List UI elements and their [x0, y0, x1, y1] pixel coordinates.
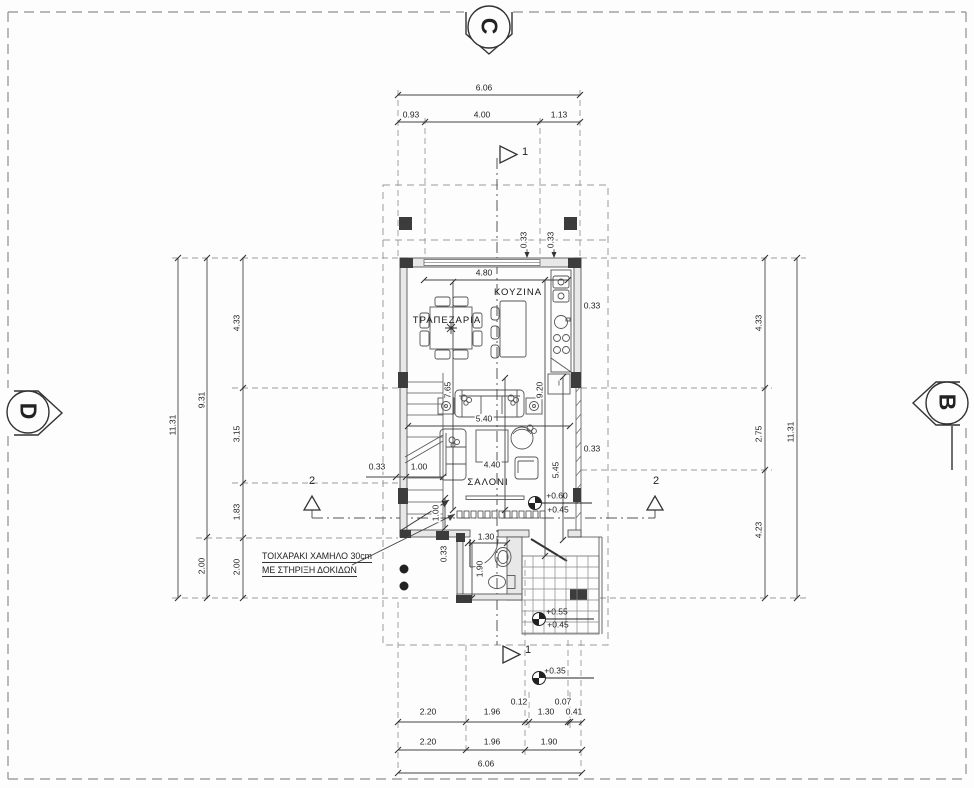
dim-top-1: 0.93: [402, 111, 421, 120]
dim-stair-run: 1.00: [432, 504, 441, 523]
dim-stair-width: 1.00: [410, 463, 429, 472]
section-cut-1-label-bottom: 1: [524, 645, 532, 657]
fridge-label: I: [557, 380, 561, 387]
dining-table-set: [420, 297, 482, 359]
dim-right-outer: 11.31: [787, 421, 796, 444]
section-cut-2-label-right: 2: [652, 476, 660, 488]
dim-left-outer: 11.31: [169, 414, 178, 437]
room-label-living: ΣΑΛΟΝΙ: [466, 478, 509, 488]
dim-wall-33-right-low: 0.33: [583, 445, 602, 454]
dim-living-width: 5.40: [475, 415, 494, 424]
dim-right-inner-1: 4.33: [755, 314, 764, 333]
dim-wc-depth: 1.90: [476, 560, 485, 579]
dimension-lines: [178, 95, 797, 773]
dimension-ticks-vertical: [175, 255, 800, 601]
dim-right-depth: 5.45: [552, 461, 561, 480]
dim-kitchen-depth: 9.20: [536, 381, 545, 400]
dim-left-inner-4: 2.00: [233, 558, 242, 577]
dim-top-3: 1.13: [550, 111, 569, 120]
section-cut-2-label-left: 2: [308, 476, 316, 488]
dim-bottom-r1-3: 1.30: [537, 708, 556, 717]
level-porch-lower: +0.45: [546, 621, 570, 630]
dim-bottom-r2-1: 2.20: [419, 738, 438, 747]
dim-top-total: 6.06: [475, 84, 494, 93]
dim-left-mid-1: 9.31: [198, 391, 207, 410]
entrance-door-leaf: [531, 539, 567, 561]
dim-bottom-r2-2: 1.96: [483, 738, 502, 747]
dim-wall-33-right-top: 0.33: [583, 302, 602, 311]
section-marker-c: C: [476, 18, 503, 35]
beam-dots: [400, 565, 409, 591]
dim-right-inner-3: 4.23: [755, 521, 764, 540]
level-living-lower: +0.45: [546, 506, 570, 515]
room-label-kitchen: ΚΟΥΖΙΝΑ: [493, 288, 543, 298]
level-porch-upper: +0.55: [545, 608, 569, 617]
dim-wall-33-left: 0.33: [368, 463, 387, 472]
dim-left-inner-2: 3.15: [233, 425, 242, 444]
room-label-dining: ΤΡΑΠΕΖΑΡΙΑ: [412, 316, 482, 326]
dim-left-inner-3: 1.83: [233, 503, 242, 522]
dim-left-mid-2: 2.00: [198, 557, 207, 576]
dim-wall-33-wc: 0.33: [440, 545, 449, 564]
section-arrows: [304, 146, 663, 663]
floor-plan-sheet: C D B 1 1 2 2 ΤΡΑΠΕΖΑΡΙΑ ΚΟΥΖΙΝΑ ΣΑΛΟΝΙ …: [0, 0, 974, 788]
dim-wall-33-a: 0.33: [520, 231, 529, 250]
dim-bottom-small-2: 0.07: [554, 698, 573, 707]
dim-bottom-r1-4: 0.41: [565, 708, 584, 717]
letter-marker-shapes: [7, 6, 968, 470]
section-marker-d: D: [15, 403, 42, 420]
dim-right-inner-2: 2.75: [755, 425, 764, 444]
dim-bottom-small-1: 0.12: [510, 698, 529, 707]
dimension-arrowheads: [525, 252, 557, 258]
dim-top-2: 4.00: [473, 111, 492, 120]
level-step: +0.35: [543, 667, 567, 676]
dim-bottom-total: 6.06: [477, 760, 496, 769]
note-line-1: ΤΟΙΧΑΡΑΚΙ ΧΑΜΗΛΟ 30cm: [262, 551, 372, 563]
dim-bottom-r2-3: 1.90: [540, 738, 559, 747]
note-line-2: ΜΕ ΣΤΗΡΙΞΗ ΔΟΚΙΔΩΝ: [262, 565, 357, 577]
dim-wall-33-b: 0.33: [547, 231, 556, 250]
dim-left-inner-1: 4.33: [233, 314, 242, 333]
section-cut-1-label-top: 1: [521, 147, 529, 159]
dim-bottom-r1-2: 1.96: [483, 708, 502, 717]
dim-bottom-r1-1: 2.20: [419, 708, 438, 717]
page-border: [8, 12, 966, 779]
dim-window-top: 4.80: [475, 269, 494, 278]
section-marker-b: B: [934, 394, 961, 411]
dim-living-depth: 4.40: [483, 461, 502, 470]
dim-stair-depth: 7.65: [444, 381, 453, 400]
dim-wc-width: 1.30: [477, 533, 496, 542]
level-living-upper: +0.60: [545, 492, 569, 501]
